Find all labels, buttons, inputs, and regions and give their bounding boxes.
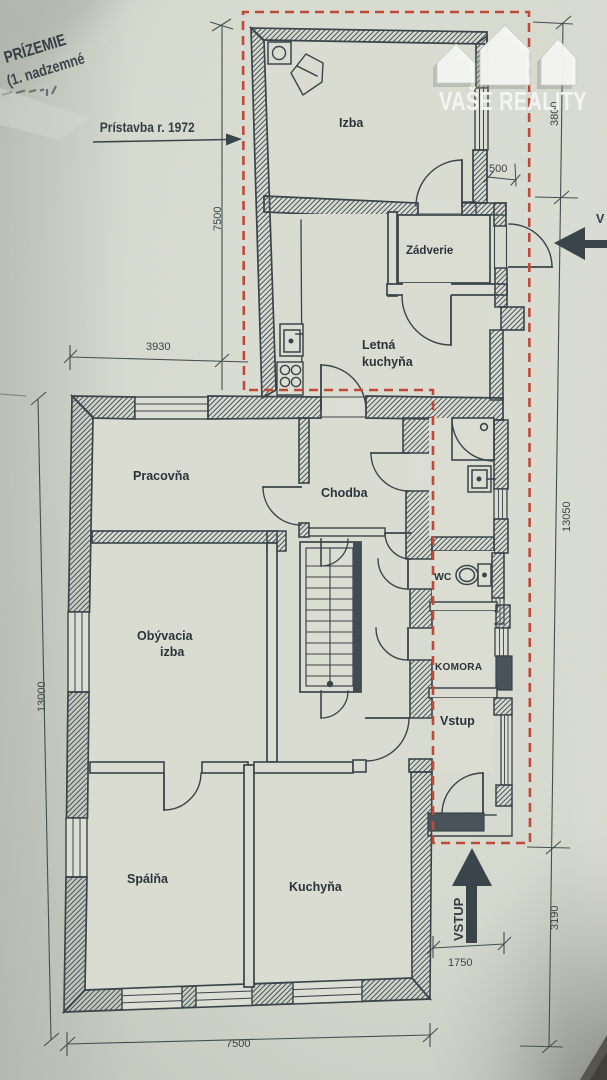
svg-text:Vstup: Vstup — [440, 714, 475, 728]
svg-text:Spálňa: Spálňa — [127, 872, 169, 886]
svg-text:Pracovňa: Pracovňa — [133, 469, 190, 483]
svg-text:Chodba: Chodba — [321, 486, 369, 500]
svg-text:Letná: Letná — [362, 338, 395, 352]
svg-text:Kuchyňa: Kuchyňa — [289, 880, 343, 894]
svg-text:V: V — [596, 212, 605, 226]
svg-text:7500: 7500 — [226, 1038, 250, 1050]
svg-text:KOMORA: KOMORA — [435, 662, 482, 673]
svg-text:13000: 13000 — [36, 681, 48, 712]
svg-text:7500: 7500 — [212, 207, 224, 231]
svg-text:izba: izba — [160, 645, 185, 659]
svg-text:VAŠE REALITY: VAŠE REALITY — [439, 87, 587, 116]
svg-text:WC: WC — [434, 571, 452, 583]
svg-text:Obývacia: Obývacia — [137, 629, 194, 643]
svg-text:kuchyňa: kuchyňa — [362, 355, 414, 369]
svg-text:13050: 13050 — [561, 501, 573, 532]
svg-text:Prístavba r. 1972: Prístavba r. 1972 — [100, 119, 195, 135]
svg-text:3930: 3930 — [146, 341, 170, 353]
svg-text:Izba: Izba — [339, 116, 364, 130]
svg-text:1750: 1750 — [448, 957, 472, 969]
svg-text:VSTUP: VSTUP — [451, 897, 466, 941]
svg-text:Zádverie: Zádverie — [406, 245, 453, 257]
svg-text:3190: 3190 — [549, 906, 561, 930]
